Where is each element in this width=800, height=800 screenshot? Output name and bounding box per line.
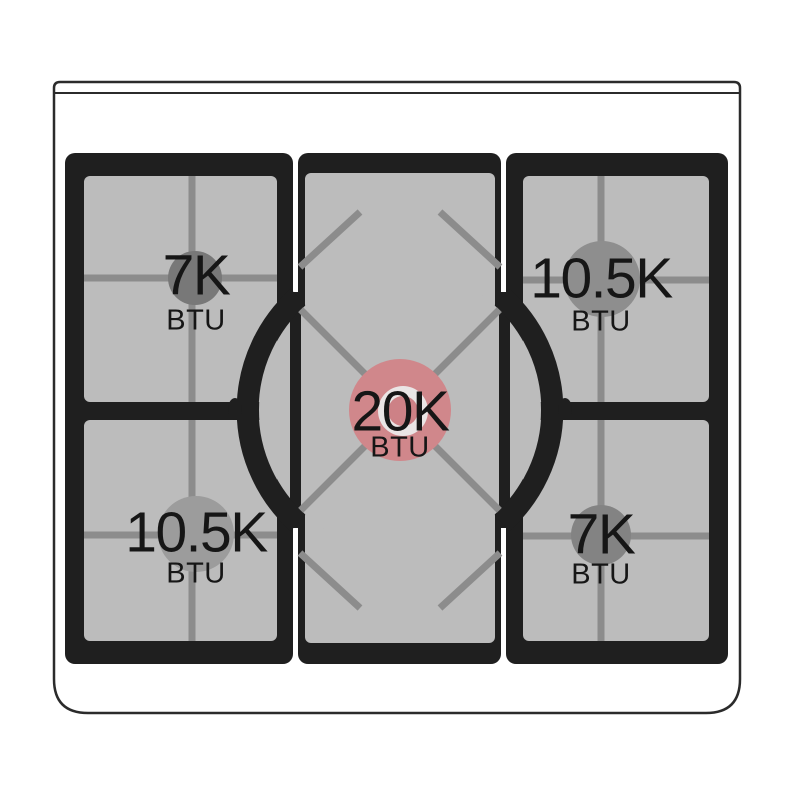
center-ring-tab-left [228, 398, 242, 420]
burner-rating-unit-bottom-left: BTU [166, 560, 226, 589]
range-cooktop-diagram: 7K BTU 10.5K BTU 20K BTU 10.5K BTU 7K BT… [0, 0, 800, 800]
center-ring-tab-right [558, 398, 572, 420]
burner-rating-unit-bottom-right: BTU [571, 561, 631, 590]
divider-bar-left [290, 292, 301, 528]
burner-rating-top-right: 10.5K [530, 251, 671, 308]
burner-rating-unit-top-right: BTU [571, 308, 631, 337]
divider-bar-right [499, 292, 510, 528]
burner-rating-unit-center: BTU [370, 434, 430, 463]
burner-rating-bottom-left: 10.5K [125, 505, 266, 562]
burner-rating-bottom-right: 7K [568, 507, 635, 564]
burner-rating-unit-top-left: BTU [166, 307, 226, 336]
burner-rating-top-left: 7K [163, 248, 230, 305]
